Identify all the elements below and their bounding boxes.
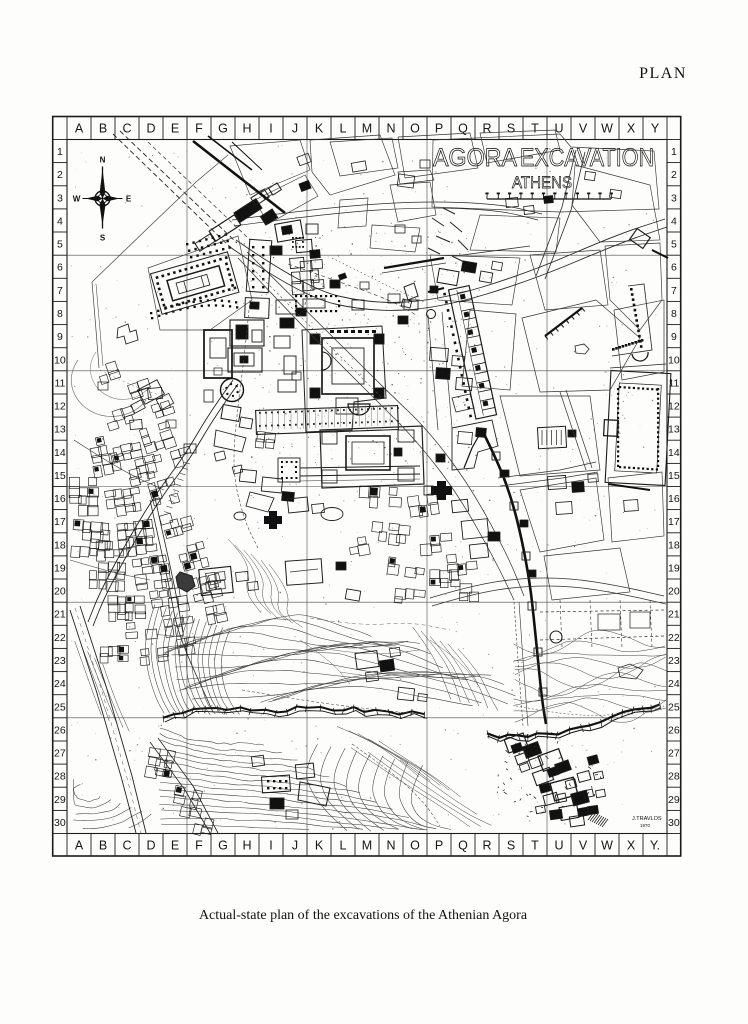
svg-text:X: X (627, 839, 636, 853)
svg-text:U: U (554, 839, 563, 853)
svg-text:17: 17 (668, 516, 680, 528)
svg-text:D: D (146, 122, 155, 136)
svg-text:A: A (75, 839, 84, 853)
svg-text:11: 11 (54, 377, 65, 389)
svg-text:G: G (218, 839, 228, 853)
svg-text:4: 4 (671, 216, 677, 228)
svg-text:W: W (601, 839, 613, 853)
svg-text:L: L (340, 839, 347, 853)
svg-text:23: 23 (54, 655, 66, 667)
svg-text:H: H (242, 122, 251, 136)
svg-text:EXCAVATION: EXCAVATION (520, 144, 654, 172)
svg-text:T: T (531, 122, 539, 136)
svg-text:8: 8 (671, 308, 677, 320)
svg-text:N: N (386, 122, 395, 136)
svg-text:A: A (75, 122, 84, 136)
svg-text:J: J (292, 839, 298, 853)
svg-text:C: C (122, 839, 131, 853)
svg-text:12: 12 (54, 401, 66, 413)
svg-text:E: E (171, 839, 179, 853)
svg-text:15: 15 (54, 470, 66, 482)
svg-text:V: V (579, 839, 588, 853)
svg-text:T: T (531, 839, 539, 853)
svg-text:2: 2 (671, 169, 677, 181)
svg-text:20: 20 (54, 586, 66, 598)
svg-text:10: 10 (54, 354, 66, 366)
svg-text:ATHENS: ATHENS (512, 173, 572, 192)
svg-text:F: F (195, 122, 203, 136)
svg-text:25: 25 (668, 701, 680, 713)
svg-text:K: K (315, 122, 324, 136)
svg-text:Y: Y (651, 122, 660, 136)
svg-text:13: 13 (668, 424, 680, 436)
svg-text:M: M (362, 122, 372, 136)
svg-text:3: 3 (671, 192, 677, 204)
svg-text:28: 28 (54, 771, 66, 783)
svg-text:29: 29 (668, 794, 680, 806)
svg-text:21: 21 (54, 609, 66, 621)
svg-text:2: 2 (57, 169, 63, 181)
svg-text:O: O (410, 839, 420, 853)
svg-text:N: N (386, 839, 395, 853)
svg-text:W: W (73, 195, 81, 204)
svg-text:R: R (482, 839, 491, 853)
svg-text:7: 7 (671, 285, 677, 297)
svg-text:I: I (269, 839, 272, 853)
svg-text:9: 9 (671, 331, 677, 343)
svg-text:B: B (99, 839, 107, 853)
svg-text:O: O (410, 122, 420, 136)
svg-text:23: 23 (668, 655, 680, 667)
svg-text:16: 16 (54, 493, 66, 505)
svg-text:E: E (171, 122, 179, 136)
svg-text:5: 5 (671, 239, 677, 251)
svg-text:4: 4 (57, 216, 63, 228)
svg-text:6: 6 (57, 262, 63, 274)
svg-text:26: 26 (668, 724, 680, 736)
svg-text:H: H (242, 839, 251, 853)
svg-text:1: 1 (57, 146, 63, 158)
svg-text:21: 21 (668, 609, 680, 621)
svg-text:S: S (507, 839, 515, 853)
svg-text:M: M (362, 839, 372, 853)
svg-text:S: S (507, 122, 515, 136)
svg-text:K: K (315, 839, 324, 853)
svg-text:1970: 1970 (640, 823, 651, 828)
svg-text:16: 16 (668, 493, 680, 505)
svg-text:27: 27 (668, 748, 680, 760)
svg-text:F: F (195, 839, 203, 853)
svg-text:19: 19 (668, 563, 680, 575)
svg-text:26: 26 (54, 724, 66, 736)
svg-text:20: 20 (668, 586, 680, 598)
svg-text:Q: Q (458, 839, 468, 853)
svg-text:8: 8 (57, 308, 63, 320)
svg-text:5: 5 (57, 239, 63, 251)
svg-text:18: 18 (54, 539, 66, 551)
svg-text:PLAN: PLAN (639, 65, 687, 82)
svg-text:17: 17 (54, 516, 66, 528)
svg-text:D: D (146, 839, 155, 853)
svg-text:3: 3 (57, 192, 63, 204)
svg-text:10: 10 (668, 354, 680, 366)
svg-text:30: 30 (54, 817, 66, 829)
svg-text:18: 18 (668, 539, 680, 551)
svg-text:J.TRAVLOS: J.TRAVLOS (632, 816, 662, 822)
svg-text:L: L (340, 122, 347, 136)
svg-text:14: 14 (668, 447, 680, 459)
svg-text:30: 30 (668, 817, 680, 829)
svg-text:Y.: Y. (650, 839, 660, 853)
svg-text:P: P (435, 839, 443, 853)
svg-text:G: G (218, 122, 228, 136)
svg-text:28: 28 (668, 771, 680, 783)
svg-text:9: 9 (57, 331, 63, 343)
svg-text:1: 1 (671, 146, 677, 158)
svg-text:C: C (122, 122, 131, 136)
svg-text:E: E (126, 195, 132, 204)
svg-text:29: 29 (54, 794, 66, 806)
svg-text:S: S (100, 234, 106, 243)
svg-text:24: 24 (668, 678, 680, 690)
svg-text:N: N (100, 156, 106, 165)
svg-text:P: P (435, 122, 443, 136)
svg-text:Actual-state plan of the excav: Actual-state plan of the excavations of … (199, 908, 528, 923)
svg-text:B: B (99, 122, 107, 136)
svg-text:R: R (482, 122, 491, 136)
svg-text:25: 25 (54, 701, 66, 713)
svg-text:7: 7 (57, 285, 63, 297)
svg-text:J: J (292, 122, 298, 136)
svg-text:I: I (269, 122, 272, 136)
svg-text:15: 15 (668, 470, 680, 482)
svg-text:X: X (627, 122, 636, 136)
svg-text:27: 27 (54, 748, 66, 760)
svg-text:19: 19 (54, 563, 66, 575)
svg-text:22: 22 (54, 632, 66, 644)
svg-text:13: 13 (54, 424, 66, 436)
svg-text:W: W (601, 122, 613, 136)
svg-text:22: 22 (668, 632, 680, 644)
svg-text:24: 24 (54, 678, 66, 690)
svg-text:V: V (579, 122, 588, 136)
svg-text:14: 14 (54, 447, 66, 459)
svg-text:AGORA: AGORA (433, 144, 517, 172)
svg-text:6: 6 (671, 262, 677, 274)
